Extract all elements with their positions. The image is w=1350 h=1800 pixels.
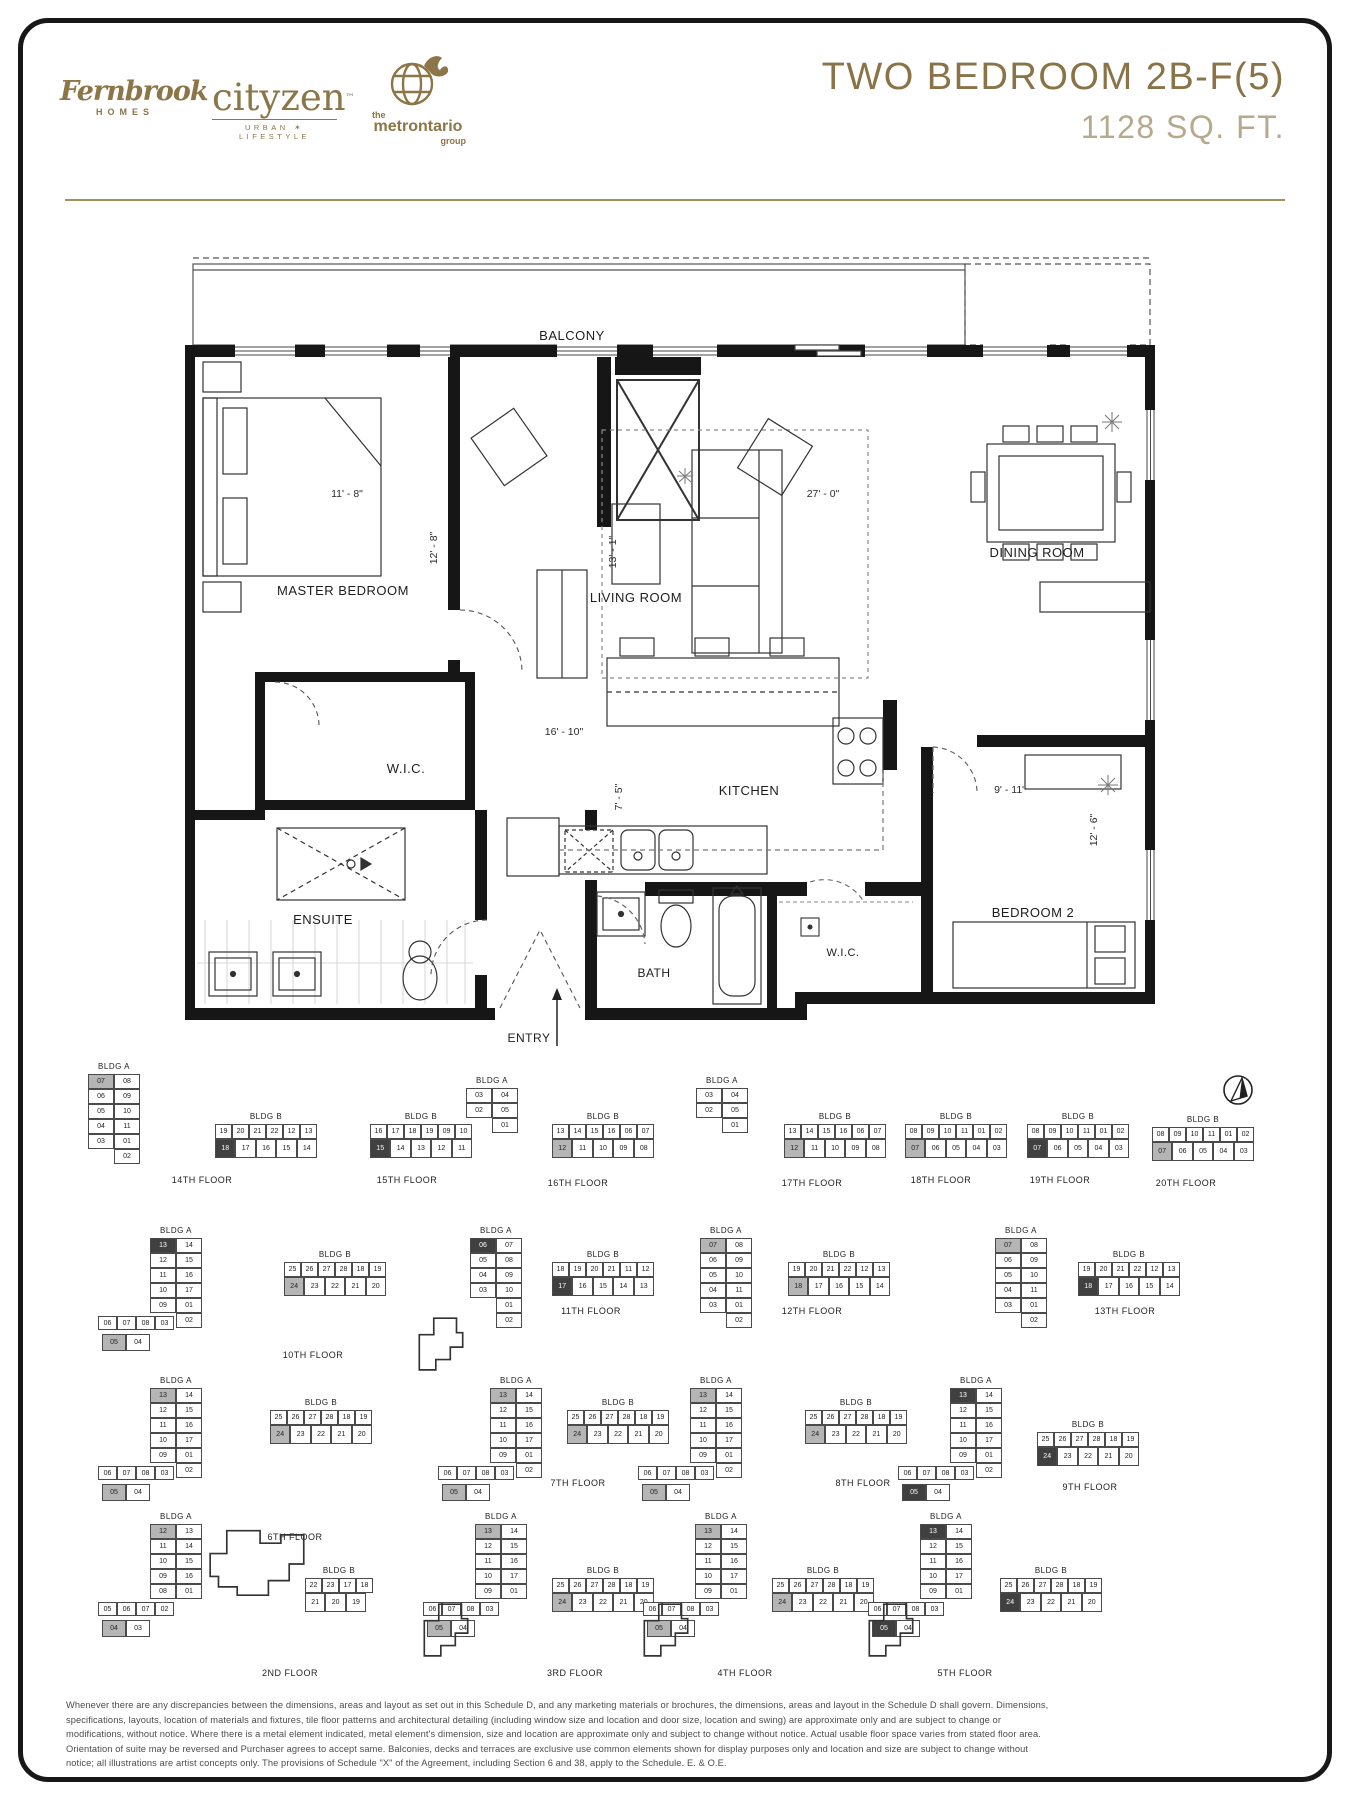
keyplan-unit: 10 <box>475 1569 501 1584</box>
disclaimer-line: specifications, layouts, location of mat… <box>66 1713 1286 1728</box>
keyplan-unit: 13 <box>873 1262 890 1277</box>
keyplan-row: 2423222120 <box>1037 1447 1139 1466</box>
cityzen-logo: cityzen™ URBAN ✶ LIFESTYLE <box>212 80 337 141</box>
dimension-label: 11' - 8" <box>331 488 363 500</box>
keyplan-unit: 20 <box>232 1124 249 1139</box>
metrontario-group-logo: the metrontario group <box>368 52 468 146</box>
keyplan-unit: 20 <box>586 1262 603 1277</box>
bldg-b-label: BLDG B <box>405 1112 437 1121</box>
keyplan-unit: 06 <box>925 1139 945 1158</box>
keyplan-unit: 10 <box>455 1124 472 1139</box>
keyplan-row: 192021221213 <box>1078 1262 1180 1277</box>
keyplan-unit: 11 <box>1203 1127 1220 1142</box>
keyplan-unit: 07 <box>995 1238 1021 1253</box>
floor-label: 5TH FLOOR <box>937 1668 992 1678</box>
keyplan-unit: 08 <box>1021 1238 1047 1253</box>
keyplan-unit: 19 <box>355 1410 372 1425</box>
bldg-a-label: BLDG A <box>710 1226 742 1235</box>
keyplan-unit: 08 <box>1152 1127 1169 1142</box>
keyplan-unit: 03 <box>480 1602 499 1616</box>
keyplan-unit: 22 <box>846 1425 866 1444</box>
room-label: W.I.C. <box>827 947 860 959</box>
keyplan-row: 2423222120 <box>772 1593 874 1612</box>
keyplan-column: 0706050403 <box>995 1238 1021 1313</box>
keyplan-unit: 20 <box>352 1425 372 1444</box>
dimension-label: 12' - 8" <box>428 531 440 564</box>
keyplan-unit: 12 <box>431 1139 451 1158</box>
keyplan-unit: 12 <box>150 1403 176 1418</box>
bldg-a-label: BLDG A <box>960 1376 992 1385</box>
floor-label: 4TH FLOOR <box>717 1668 772 1678</box>
keyplan-unit: 25 <box>284 1262 301 1277</box>
keyplan-unit: 16 <box>572 1277 592 1296</box>
keyplan-unit: 06 <box>898 1466 917 1480</box>
dimension-label: 12' - 6" <box>1088 813 1100 846</box>
keyplan-unit: 25 <box>552 1578 569 1593</box>
keyplan-row: 0504 <box>902 1484 950 1501</box>
keyplan-row: 1716151413 <box>552 1277 654 1296</box>
keyplan-unit: 27 <box>839 1410 856 1425</box>
keyplan-unit: 05 <box>722 1103 748 1118</box>
keyplan-unit: 01 <box>946 1584 972 1599</box>
keyplan-unit: 15 <box>716 1403 742 1418</box>
keyplan-unit: 10 <box>150 1283 176 1298</box>
keyplan-unit: 24 <box>284 1277 304 1296</box>
keyplan-unit: 17 <box>501 1569 527 1584</box>
keyplan-unit: 24 <box>805 1425 825 1444</box>
keyplan-unit: 11 <box>452 1139 472 1158</box>
keyplan-unit: 15 <box>276 1139 296 1158</box>
bldg-b-label: BLDG B <box>823 1250 855 1259</box>
bldg-b-label: BLDG B <box>602 1398 634 1407</box>
keyplan-unit: 06 <box>470 1238 496 1253</box>
keyplan-unit: 06 <box>117 1602 136 1616</box>
keyplan-unit: 17 <box>808 1277 828 1296</box>
keyplan-unit: 02 <box>716 1463 742 1478</box>
keyplan-column: 0706050403 <box>88 1074 114 1149</box>
bldg-a-label: BLDG A <box>700 1376 732 1385</box>
keyplan-unit: 07 <box>700 1238 726 1253</box>
keyplan-unit: 18 <box>1105 1432 1122 1447</box>
floor-label: 15TH FLOOR <box>377 1175 438 1185</box>
keyplan-unit: 22 <box>608 1425 628 1444</box>
keyplan-column: 1312111009 <box>950 1388 976 1463</box>
keyplan-unit: 13 <box>552 1124 569 1139</box>
podium-outline <box>206 1522 310 1606</box>
keyplan-column: 1312111009 <box>150 1238 176 1313</box>
keyplan-unit: 01 <box>492 1118 518 1133</box>
bldg-b-label: BLDG B <box>819 1112 851 1121</box>
keyplan-unit: 09 <box>475 1584 501 1599</box>
keyplan-unit: 09 <box>922 1124 939 1139</box>
keyplan-unit: 14 <box>176 1539 202 1554</box>
keyplan-unit: 07 <box>117 1316 136 1330</box>
keyplan-unit: 05 <box>1068 1139 1088 1158</box>
keyplan-unit: 14 <box>946 1524 972 1539</box>
keyplan-column: 040501 <box>492 1088 518 1133</box>
keyplan-unit: 04 <box>492 1088 518 1103</box>
keyplan-unit: 14 <box>721 1524 747 1539</box>
keyplan-unit: 02 <box>496 1313 522 1328</box>
podium-outline <box>639 1598 693 1660</box>
keyplan-unit: 25 <box>1037 1432 1054 1447</box>
keyplan-unit: 11 <box>920 1554 946 1569</box>
keyplan-column: 070809100102 <box>496 1238 522 1328</box>
keyplan-unit: 08 <box>726 1238 752 1253</box>
keyplan-unit: 14 <box>297 1139 317 1158</box>
keyplan-unit: 22 <box>1041 1593 1061 1612</box>
bldg-b-label: BLDG B <box>305 1398 337 1407</box>
keyplan-unit: 09 <box>695 1584 721 1599</box>
keyplan-row: 252627281819 <box>270 1410 372 1425</box>
keyplan-unit: 01 <box>976 1448 1002 1463</box>
bldg-a-label: BLDG A <box>160 1512 192 1521</box>
keyplan-unit: 01 <box>496 1298 522 1313</box>
keyplan-unit: 16 <box>370 1124 387 1139</box>
keyplan-unit: 19 <box>369 1262 386 1277</box>
keyplan-unit: 28 <box>823 1578 840 1593</box>
keyplan-unit: 04 <box>466 1484 490 1501</box>
keyplan-unit: 08 <box>136 1466 155 1480</box>
keyplan-row: 0403 <box>102 1620 150 1637</box>
keyplan-unit: 02 <box>114 1149 140 1164</box>
floor-label: 8TH FLOOR <box>835 1478 890 1488</box>
keyplan-unit: 08 <box>905 1124 922 1139</box>
keyplan-unit: 25 <box>1000 1578 1017 1593</box>
keyplan-unit: 16 <box>835 1124 852 1139</box>
keyplan-unit: 19 <box>637 1578 654 1593</box>
keyplan-unit: 09 <box>845 1139 865 1158</box>
keyplan-unit: 22 <box>266 1124 283 1139</box>
keyplan-unit: 07 <box>88 1074 114 1089</box>
keyplan-unit: 28 <box>856 1410 873 1425</box>
cityzen-tagline: URBAN ✶ LIFESTYLE <box>212 119 337 141</box>
keyplan-unit: 13 <box>490 1388 516 1403</box>
keyplan-unit: 12 <box>490 1403 516 1418</box>
keyplan-unit: 15 <box>721 1539 747 1554</box>
keyplan-unit: 27 <box>304 1410 321 1425</box>
keyplan-unit: 12 <box>552 1139 572 1158</box>
keyplan-unit: 10 <box>825 1139 845 1158</box>
keyplan-column: 0302 <box>466 1088 492 1118</box>
keyplan-unit: 12 <box>695 1539 721 1554</box>
keyplan-unit: 16 <box>829 1277 849 1296</box>
keyplan-column: 1415161701 <box>721 1524 747 1599</box>
keyplan-unit: 08 <box>150 1584 176 1599</box>
keyplan-row: 192021221213 <box>215 1124 317 1139</box>
keyplan-unit: 10 <box>1186 1127 1203 1142</box>
keyplan-unit: 06 <box>88 1089 114 1104</box>
keyplan-unit: 01 <box>973 1124 990 1139</box>
keyplan-unit: 20 <box>805 1262 822 1277</box>
keyplan-unit: 05 <box>492 1103 518 1118</box>
keyplan-unit: 13 <box>1163 1262 1180 1277</box>
bldg-b-label: BLDG B <box>807 1566 839 1575</box>
disclaimer-line: Whenever there are any discrepancies bet… <box>66 1698 1286 1713</box>
keyplan-unit: 12 <box>150 1253 176 1268</box>
keyplan-unit: 07 <box>637 1124 654 1139</box>
room-label: BALCONY <box>539 328 605 343</box>
keyplan-unit: 16 <box>176 1268 202 1283</box>
room-label: KITCHEN <box>719 783 780 798</box>
keyplan-unit: 25 <box>772 1578 789 1593</box>
keyplan-unit: 04 <box>102 1620 126 1637</box>
floorplan-drawing: BALCONYMASTER BEDROOMLIVING ROOMDINING R… <box>165 230 1175 1060</box>
keyplan-unit: 20 <box>1082 1593 1102 1612</box>
bldg-b-label: BLDG B <box>587 1566 619 1575</box>
keyplan-unit: 18 <box>404 1124 421 1139</box>
keyplan-unit: 04 <box>1213 1142 1233 1161</box>
keyplan-unit: 09 <box>150 1569 176 1584</box>
keyplan-row: 0504 <box>642 1484 690 1501</box>
keyplan-row: 1211100908 <box>552 1139 654 1158</box>
keyplan-unit: 06 <box>852 1124 869 1139</box>
keyplan-unit: 06 <box>638 1466 657 1480</box>
keyplan-unit: 17 <box>516 1433 542 1448</box>
floor-label: 9TH FLOOR <box>1062 1482 1117 1492</box>
keyplan-unit: 22 <box>305 1578 322 1593</box>
keyplan-unit: 22 <box>311 1425 331 1444</box>
keyplan-unit: 22 <box>1129 1262 1146 1277</box>
keyplan-row: 1817161514 <box>215 1139 317 1158</box>
unit-area: 1128 SQ. FT. <box>822 109 1285 146</box>
keyplan-row: 22231718 <box>305 1578 373 1593</box>
keyplan-unit: 04 <box>470 1268 496 1283</box>
keyplan-unit: 26 <box>287 1410 304 1425</box>
keyplan-unit: 18 <box>635 1410 652 1425</box>
floor-label: 7TH FLOOR <box>550 1478 605 1488</box>
keyplan-unit: 15 <box>1139 1277 1159 1296</box>
keyplan-unit: 19 <box>215 1124 232 1139</box>
keyplan-column: 1314151601 <box>176 1524 202 1599</box>
keyplan-unit: 03 <box>495 1466 514 1480</box>
keyplan-unit: 13 <box>300 1124 317 1139</box>
keyplan-unit: 07 <box>657 1466 676 1480</box>
keyplan-unit: 22 <box>1078 1447 1098 1466</box>
page-title: TWO BEDROOM 2B-F(5) <box>822 56 1285 99</box>
keyplan-unit: 05 <box>700 1268 726 1283</box>
keyplan-unit: 21 <box>249 1124 266 1139</box>
keyplan-row: 181920211112 <box>552 1262 654 1277</box>
keyplan-unit: 27 <box>1071 1432 1088 1447</box>
keyplan-unit: 01 <box>721 1584 747 1599</box>
podium-outline <box>414 1312 468 1374</box>
keyplan-unit: 16 <box>721 1554 747 1569</box>
keyplan-unit: 05 <box>442 1484 466 1501</box>
keyplan-column: 1312111009 <box>695 1524 721 1599</box>
keyplan-unit: 15 <box>946 1539 972 1554</box>
keyplan-unit: 03 <box>155 1316 174 1330</box>
bldg-a-label: BLDG A <box>98 1062 130 1071</box>
keyplan-unit: 08 <box>676 1466 695 1480</box>
keyplan-unit: 04 <box>995 1283 1021 1298</box>
keyplan-unit: 11 <box>956 1124 973 1139</box>
keyplan-unit: 01 <box>722 1118 748 1133</box>
keyplan-unit: 03 <box>695 1466 714 1480</box>
keyplan-unit: 11 <box>572 1139 592 1158</box>
keyplan-unit: 01 <box>516 1448 542 1463</box>
keyplan-unit: 09 <box>150 1298 176 1313</box>
keyplan-unit: 20 <box>325 1593 345 1612</box>
keyplan-unit: 14 <box>801 1124 818 1139</box>
dimension-label: 16' - 10" <box>545 726 584 738</box>
keyplan-unit: 02 <box>1237 1127 1254 1142</box>
keyplan-unit: 17 <box>552 1277 572 1296</box>
keyplan-column: 080910110102 <box>114 1074 140 1164</box>
bldg-b-label: BLDG B <box>1062 1112 1094 1121</box>
keyplan-unit: 10 <box>920 1569 946 1584</box>
keyplan-row: 06070803 <box>98 1466 174 1480</box>
keyplan-unit: 02 <box>155 1602 174 1616</box>
keyplan-unit: 11 <box>475 1554 501 1569</box>
keyplan-unit: 25 <box>805 1410 822 1425</box>
keyplan-row: 1514131211 <box>370 1139 472 1158</box>
bldg-b-label: BLDG B <box>840 1398 872 1407</box>
keyplan-row: 0504 <box>442 1484 490 1501</box>
keyplan-unit: 24 <box>1037 1447 1057 1466</box>
keyplan-unit: 22 <box>593 1593 613 1612</box>
floor-label: 19TH FLOOR <box>1030 1175 1091 1185</box>
room-label: ENTRY <box>508 1031 551 1045</box>
keyplan-row: 2423222120 <box>284 1277 386 1296</box>
keyplan-unit: 14 <box>870 1277 890 1296</box>
keyplan-row: 06070803 <box>638 1466 714 1480</box>
keyplan-row: 131415160607 <box>552 1124 654 1139</box>
keyplan-unit: 21 <box>1061 1593 1081 1612</box>
keyplan-unit: 11 <box>150 1539 176 1554</box>
keyplan-unit: 19 <box>421 1124 438 1139</box>
keyplan-unit: 11 <box>490 1418 516 1433</box>
bldg-b-label: BLDG B <box>319 1250 351 1259</box>
keyplan-unit: 06 <box>1047 1139 1067 1158</box>
floor-label: 14TH FLOOR <box>172 1175 233 1185</box>
keyplan-row: 06070803 <box>898 1466 974 1480</box>
keyplan-unit: 04 <box>966 1139 986 1158</box>
keyplan-unit: 17 <box>976 1433 1002 1448</box>
keyplan-unit: 12 <box>475 1539 501 1554</box>
keyplan-unit: 09 <box>1169 1127 1186 1142</box>
room-label: BATH <box>637 966 670 980</box>
keyplan-column: 040501 <box>722 1088 748 1133</box>
keyplan-unit: 27 <box>1034 1578 1051 1593</box>
keyplan-unit: 20 <box>1095 1262 1112 1277</box>
keyplan-column: 0302 <box>696 1088 722 1118</box>
keyplan-unit: 22 <box>839 1262 856 1277</box>
keyplan-unit: 12 <box>637 1262 654 1277</box>
keyplan-unit: 11 <box>690 1418 716 1433</box>
keyplan-unit: 09 <box>496 1268 522 1283</box>
floor-label: 20TH FLOOR <box>1156 1178 1217 1188</box>
keyplan-unit: 09 <box>613 1139 633 1158</box>
room-label: W.I.C. <box>387 761 425 776</box>
keyplan-column: 1312111009 <box>490 1388 516 1463</box>
keyplan-unit: 06 <box>98 1466 117 1480</box>
keyplan-unit: 14 <box>613 1277 633 1296</box>
keyplan-unit: 17 <box>946 1569 972 1584</box>
keyplan-column: 1415161701 <box>946 1524 972 1599</box>
keyplan-unit: 04 <box>126 1484 150 1501</box>
dimension-label: 13' - 1" <box>607 535 619 568</box>
disclaimer-line: notice; all illustrations are artist con… <box>66 1756 1286 1771</box>
keyplan-unit: 09 <box>950 1448 976 1463</box>
bldg-b-label: BLDG B <box>1072 1420 1104 1429</box>
keyplan-unit: 21 <box>866 1425 886 1444</box>
keyplan-unit: 06 <box>98 1316 117 1330</box>
keyplan-unit: 23 <box>587 1425 607 1444</box>
bedroom2-furniture <box>933 747 1135 988</box>
keyplan-unit: 26 <box>822 1410 839 1425</box>
keyplan-unit: 03 <box>466 1088 492 1103</box>
unit-title-block: TWO BEDROOM 2B-F(5) 1128 SQ. FT. <box>822 56 1285 146</box>
keyplan-unit: 20 <box>366 1277 386 1296</box>
keyplan-unit: 05 <box>946 1139 966 1158</box>
keyplan-unit: 10 <box>593 1139 613 1158</box>
keyplan-unit: 14 <box>176 1388 202 1403</box>
keyplan-unit: 02 <box>1021 1313 1047 1328</box>
keyplan-unit: 03 <box>1109 1139 1129 1158</box>
keyplan-unit: 11 <box>620 1262 637 1277</box>
header-divider <box>65 199 1285 201</box>
master-bed <box>203 362 381 612</box>
bldg-a-label: BLDG A <box>476 1076 508 1085</box>
keyplan-unit: 10 <box>150 1554 176 1569</box>
keyplan-row: 0706050403 <box>1027 1139 1129 1158</box>
keyplan-unit: 05 <box>642 1484 666 1501</box>
keyplan-unit: 14 <box>390 1139 410 1158</box>
keyplan-unit: 18 <box>215 1139 235 1158</box>
keyplan-unit: 26 <box>301 1262 318 1277</box>
keyplan-unit: 17 <box>721 1569 747 1584</box>
podium-outline <box>419 1598 473 1660</box>
keyplan-unit: 27 <box>806 1578 823 1593</box>
keyplan-unit: 27 <box>318 1262 335 1277</box>
keyplan-unit: 03 <box>955 1466 974 1480</box>
keyplan-unit: 16 <box>716 1418 742 1433</box>
keyplan-unit: 03 <box>1234 1142 1254 1161</box>
keyplan-unit: 23 <box>1057 1447 1077 1466</box>
keyplan-unit: 03 <box>995 1298 1021 1313</box>
keyplan-row: 131415160607 <box>784 1124 886 1139</box>
keyplan-unit: 05 <box>88 1104 114 1119</box>
bldg-a-label: BLDG A <box>930 1512 962 1521</box>
keyplan-column: 1312111009 <box>150 1388 176 1463</box>
keyplan-column: 06050403 <box>470 1238 496 1298</box>
keyplan-row: 2423222120 <box>567 1425 669 1444</box>
keyplan-unit: 01 <box>176 1448 202 1463</box>
keyplan-row: 0706050403 <box>1152 1142 1254 1161</box>
keyplan-column: 080910110102 <box>1021 1238 1047 1328</box>
bldg-b-label: BLDG B <box>323 1566 355 1575</box>
keyplan-unit: 11 <box>1021 1283 1047 1298</box>
keyplan-unit: 08 <box>476 1466 495 1480</box>
keyplan-column: 1415161701 <box>501 1524 527 1599</box>
keyplan-unit: 06 <box>995 1253 1021 1268</box>
keyplan-unit: 24 <box>552 1593 572 1612</box>
keyplan-unit: 13 <box>475 1524 501 1539</box>
keyplan-unit: 07 <box>1152 1142 1172 1161</box>
keyplan-unit: 19 <box>788 1262 805 1277</box>
metro-wordmark: metrontario <box>368 118 468 136</box>
room-label: BEDROOM 2 <box>992 905 1075 920</box>
keyplan-unit: 15 <box>516 1403 542 1418</box>
room-label: LIVING ROOM <box>590 590 682 605</box>
bldg-a-label: BLDG A <box>706 1076 738 1085</box>
bldg-a-label: BLDG A <box>1005 1226 1037 1235</box>
bldg-b-label: BLDG B <box>1035 1566 1067 1575</box>
keyplan-unit: 08 <box>866 1139 886 1158</box>
keyplan-column: 141516170102 <box>976 1388 1002 1478</box>
keyplan-unit: 06 <box>438 1466 457 1480</box>
